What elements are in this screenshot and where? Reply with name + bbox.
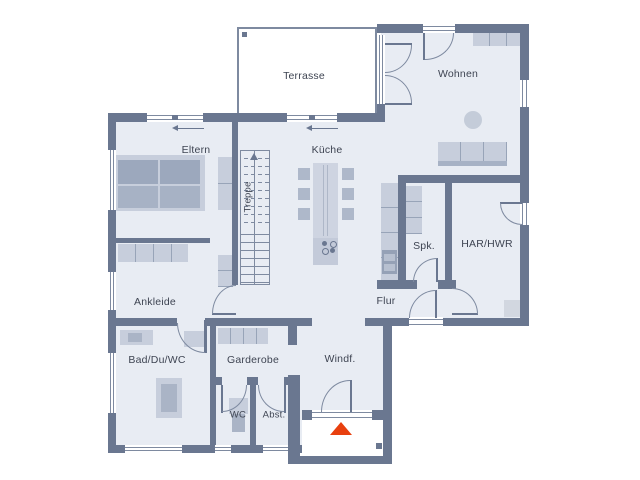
room-label-treppe: Treppe (243, 182, 254, 213)
chair (298, 168, 310, 180)
wall-left (108, 310, 116, 353)
entry-door-post (302, 410, 312, 420)
cooktop-burner (322, 248, 329, 255)
entry-door-leaf (350, 380, 352, 412)
sofa-front (438, 161, 507, 166)
wall-right (520, 107, 529, 203)
wall-right (520, 24, 529, 80)
sofa (438, 142, 507, 162)
wall-left (108, 113, 116, 150)
chair (298, 188, 310, 200)
wall-porch-bottom (292, 456, 392, 464)
table-line (327, 165, 328, 236)
cooktop-burner (322, 241, 327, 246)
room-label-har-hwr: HAR/HWR (461, 238, 513, 250)
wall-bottom-har (443, 318, 528, 326)
wall-ankleide-bad (116, 318, 177, 326)
wall-wc-top (216, 377, 222, 385)
garderobe-closet (218, 328, 268, 344)
door-threshold-flur-ext (409, 317, 443, 327)
entrance-triangle-marker (330, 422, 352, 435)
chair (342, 208, 354, 220)
wall-wc-abst-divider (250, 385, 256, 445)
oven-detail (384, 264, 395, 271)
stair-up-arrow-icon (250, 153, 258, 160)
entry-door-post (372, 410, 383, 420)
eltern-closet (218, 157, 233, 210)
wall-garderobe-windfang-stub (288, 326, 297, 345)
staircase (240, 150, 270, 285)
window-marker (309, 115, 315, 120)
wall-bottom (231, 445, 263, 453)
shower-tray (161, 384, 177, 412)
bath-sink (128, 333, 142, 342)
oven-detail (384, 254, 395, 261)
window-wohnen-right (520, 80, 529, 107)
room-label-spk: Spk. (413, 240, 435, 252)
stair-steps (241, 227, 269, 284)
wall-right (520, 225, 529, 326)
porch-post-marker (376, 443, 382, 449)
room-label-eltern: Eltern (182, 144, 211, 156)
wall-bad-garderobe (210, 326, 216, 445)
window-bad-left (108, 353, 116, 413)
room-label-wohnen: Wohnen (438, 68, 478, 80)
ankleide-wardrobe (118, 244, 188, 262)
wall-left (108, 210, 116, 272)
room-label-windfang: Windf. (325, 353, 356, 365)
stair-walkline (254, 151, 255, 284)
window-eltern-left (108, 150, 116, 210)
dining-table (313, 163, 338, 238)
wall-kueche-spk (398, 175, 406, 282)
door-threshold-wohnen-top (423, 24, 455, 33)
wall-eltern-treppe (232, 122, 238, 285)
floor-plan: Terrasse Wohnen Eltern Küche Treppe Spk.… (0, 0, 640, 480)
wall-top-wohnen (377, 24, 423, 33)
wall-bottom (108, 445, 125, 453)
wall-wohnen-left (377, 104, 385, 113)
french-door-leaf (385, 103, 412, 105)
terrace-post-marker (242, 32, 247, 37)
room-label-abst: Abst. (263, 410, 286, 421)
wall-spk-bottom (377, 280, 417, 289)
bed-pillow (118, 160, 158, 184)
bed-mattress (118, 186, 158, 208)
wall-mid-lower (205, 318, 312, 326)
wall-bottom (182, 445, 215, 453)
wall-wohnen-har (398, 175, 528, 183)
wall-porch-right (383, 322, 392, 464)
cooktop-burner (330, 248, 335, 253)
window-marker (172, 115, 178, 120)
bed-pillow (160, 160, 200, 184)
chair (298, 208, 310, 220)
french-door-threshold (377, 35, 385, 104)
sideboard (473, 33, 523, 46)
window-ankleide-left (108, 272, 116, 310)
wall-top-left (337, 113, 385, 122)
window-bad-bottom (125, 445, 182, 453)
wall-spk-har (445, 183, 452, 283)
window-arrow-line (312, 128, 338, 129)
chair (342, 188, 354, 200)
bed-mattress (160, 186, 200, 208)
room-label-bad-du-wc: Bad/Du/WC (128, 354, 185, 366)
chair (342, 168, 354, 180)
room-label-kueche: Küche (312, 144, 343, 156)
room-label-ankleide: Ankleide (134, 296, 176, 308)
pantry-shelf (406, 186, 422, 234)
room-label-flur: Flur (377, 295, 396, 307)
window-wc-bottom (215, 445, 231, 453)
wall-top-wohnen (455, 24, 528, 33)
wall-eltern-ankleide (116, 238, 210, 243)
wall-wc-abst-post (247, 377, 258, 385)
table-line (323, 165, 324, 236)
window-arrow-line (178, 128, 204, 129)
wall-abst-top (284, 377, 290, 385)
room-label-terrasse: Terrasse (283, 70, 325, 82)
room-label-garderobe: Garderobe (227, 354, 279, 366)
wall-top-left (203, 113, 287, 122)
room-label-wc: WC (230, 410, 246, 421)
cooktop-burner (330, 241, 337, 248)
side-table (464, 111, 482, 129)
wall-porch-left (288, 375, 300, 464)
ankleide-closet-side (218, 255, 233, 287)
